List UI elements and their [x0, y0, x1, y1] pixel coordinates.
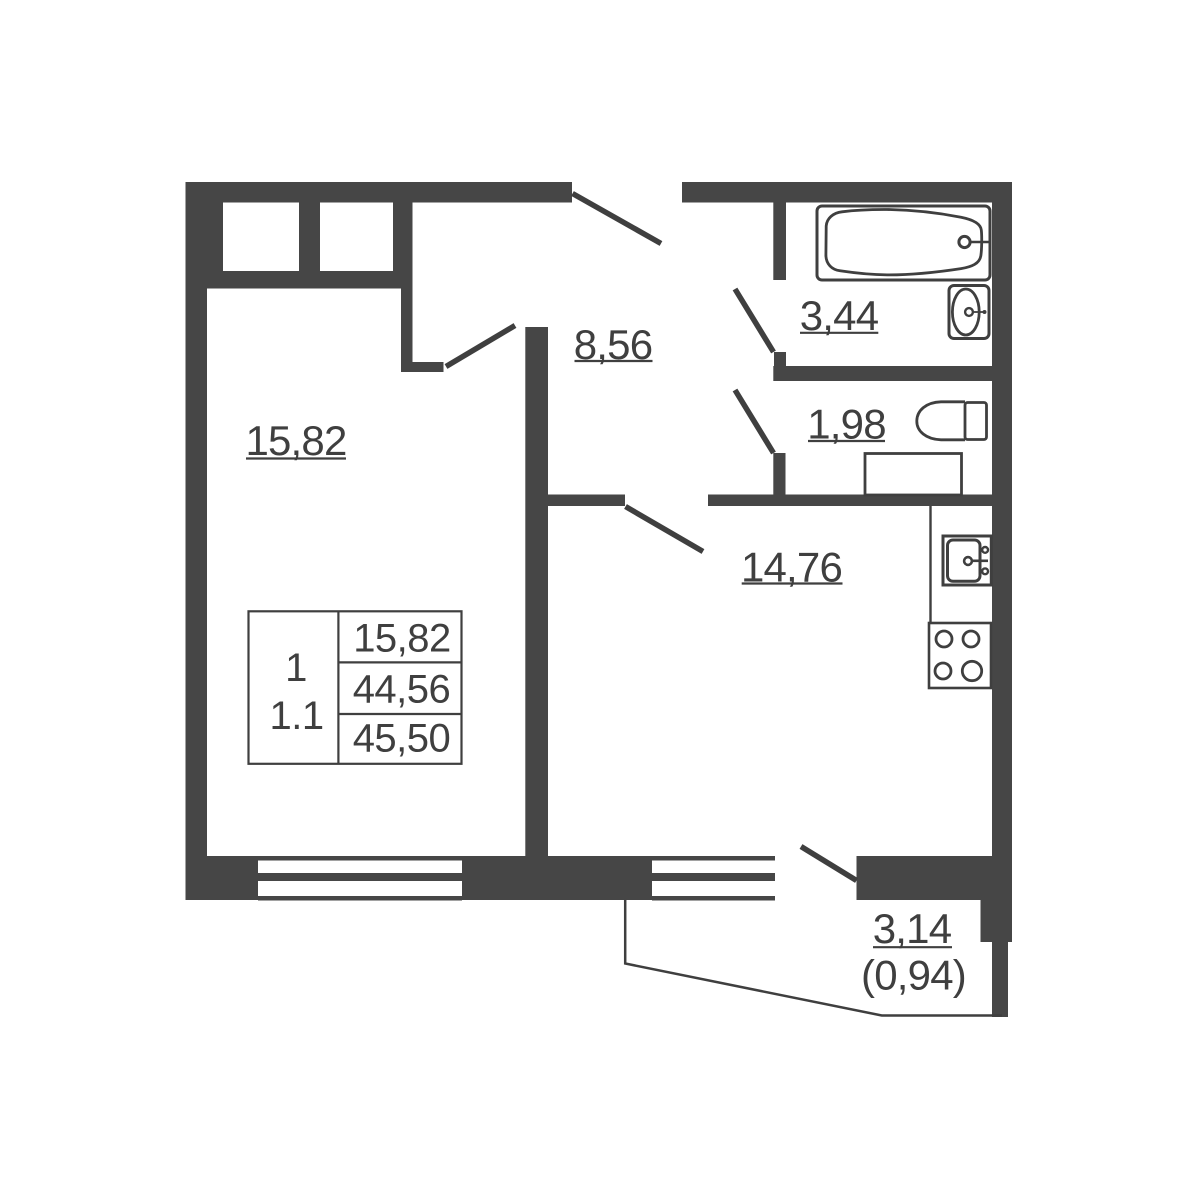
svg-text:45,50: 45,50: [353, 716, 451, 760]
svg-text:1.1: 1.1: [270, 694, 324, 738]
svg-text:(0,94): (0,94): [861, 951, 966, 998]
svg-text:15,82: 15,82: [245, 417, 346, 464]
svg-text:1: 1: [285, 646, 307, 690]
svg-text:44,56: 44,56: [353, 667, 451, 711]
svg-text:15,82: 15,82: [353, 617, 451, 661]
svg-text:3,14: 3,14: [873, 905, 952, 952]
